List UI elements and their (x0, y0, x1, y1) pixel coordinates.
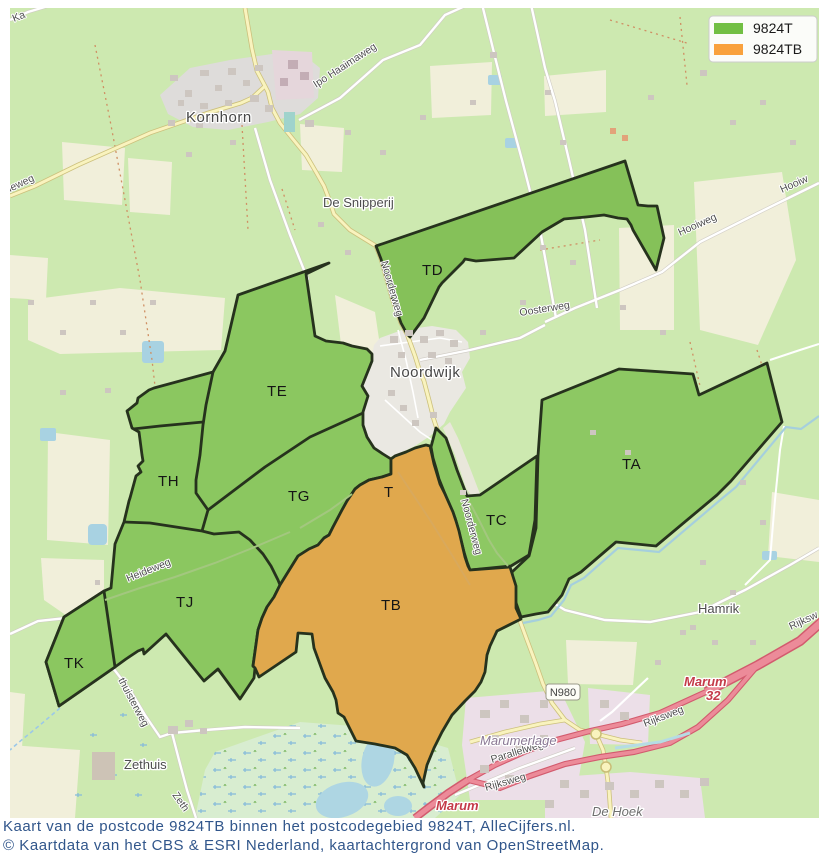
svg-text:TG: TG (288, 488, 310, 505)
svg-text:T: T (384, 484, 394, 501)
svg-text:TE: TE (267, 383, 287, 400)
svg-text:Kornhorn: Kornhorn (186, 109, 252, 126)
svg-text:Noordwijk: Noordwijk (390, 364, 460, 381)
svg-text:Marumerlage: Marumerlage (480, 733, 557, 748)
svg-text:TD: TD (422, 262, 443, 279)
svg-text:TA: TA (622, 456, 641, 473)
svg-text:De Hoek: De Hoek (592, 804, 644, 818)
svg-text:TC: TC (486, 512, 507, 529)
svg-text:9824TB: 9824TB (753, 41, 802, 57)
svg-text:Zethuis: Zethuis (124, 757, 167, 772)
svg-text:TJ: TJ (176, 594, 194, 611)
svg-text:32: 32 (706, 688, 721, 703)
svg-text:N980: N980 (550, 687, 576, 699)
svg-text:TB: TB (381, 597, 401, 614)
svg-text:Marum: Marum (684, 674, 727, 689)
svg-text:Marum: Marum (436, 798, 479, 813)
svg-text:Hamrik: Hamrik (698, 601, 740, 616)
svg-text:TK: TK (64, 655, 84, 672)
svg-text:De Snipperij: De Snipperij (323, 195, 394, 210)
svg-text:9824T: 9824T (753, 20, 793, 36)
svg-text:TH: TH (158, 473, 179, 490)
